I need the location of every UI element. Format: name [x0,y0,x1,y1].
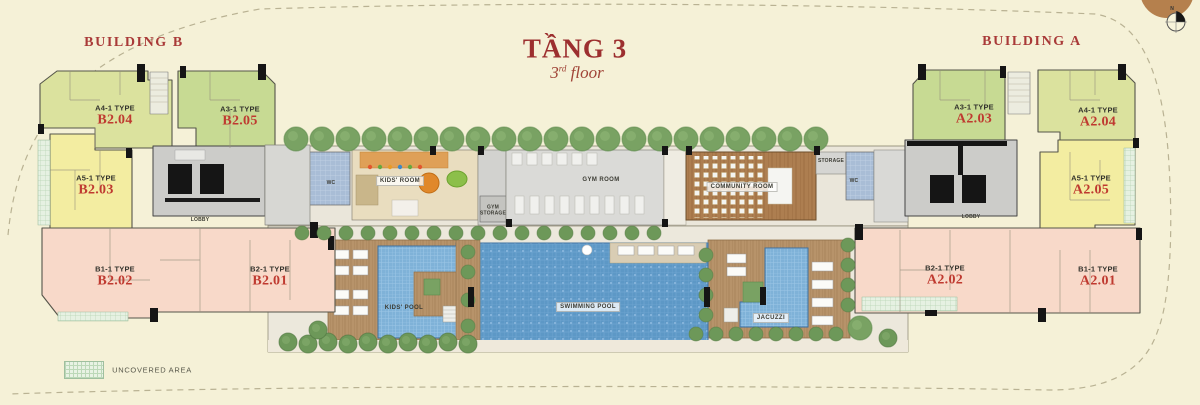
unit-label-a204: A4-1 TYPEA2.04 [1078,106,1118,131]
storage-label: STORAGE [818,158,844,164]
building-b-label: BUILDING B [84,35,184,51]
swimming-pool-label: SWIMMING POOL [556,302,620,312]
jacuzzi-label: JACUZZI [753,313,789,323]
unit-label-a201: B1-1 TYPEA2.01 [1078,265,1118,290]
unit-label-a205: A5-1 TYPEA2.05 [1071,174,1111,199]
gym-room-label: GYM ROOM [582,177,619,183]
unit-label-b201: B2-1 TYPEB2.01 [250,265,290,290]
uncovered-area-label: UNCOVERED AREA [112,366,192,375]
unit-label-b202: B1-1 TYPEB2.02 [95,265,135,290]
unit-label-b204: A4-1 TYPEB2.04 [95,104,135,129]
wc-right-label: WC [850,178,859,184]
unit-label-b203: A5-1 TYPEB2.03 [76,174,116,199]
community-room-label: COMMUNITY ROOM [707,182,778,192]
wc-left-label: WC [327,180,336,186]
unit-label-a202: B2-1 TYPEA2.02 [925,264,965,289]
lobby-right-label: LOBBY [962,214,981,220]
decorative-circle [1140,0,1194,18]
compass-north-label: N [1170,6,1174,12]
kids-pool-label: KIDS' POOL [385,305,423,311]
lobby-left-label: LOBBY [191,217,210,223]
amenity-strip [268,146,908,226]
building-a-label: BUILDING A [982,34,1082,50]
page-title: TẦNG 3 [523,34,627,65]
uncovered-area-swatch [64,361,104,379]
unit-band-b-pink [42,228,335,318]
page-subtitle: 3rd floor [550,63,603,83]
floor-plan-page: BUILDING B BUILDING A TẦNG 3 3rd floor N… [0,0,1200,405]
unit-label-a203: A3-1 TYPEA2.03 [954,103,994,128]
gym-storage-label: GYM STORAGE [480,205,506,217]
unit-label-b205: A3-1 TYPEB2.05 [220,105,260,130]
kids-room-label: KIDS' ROOM [376,176,424,186]
